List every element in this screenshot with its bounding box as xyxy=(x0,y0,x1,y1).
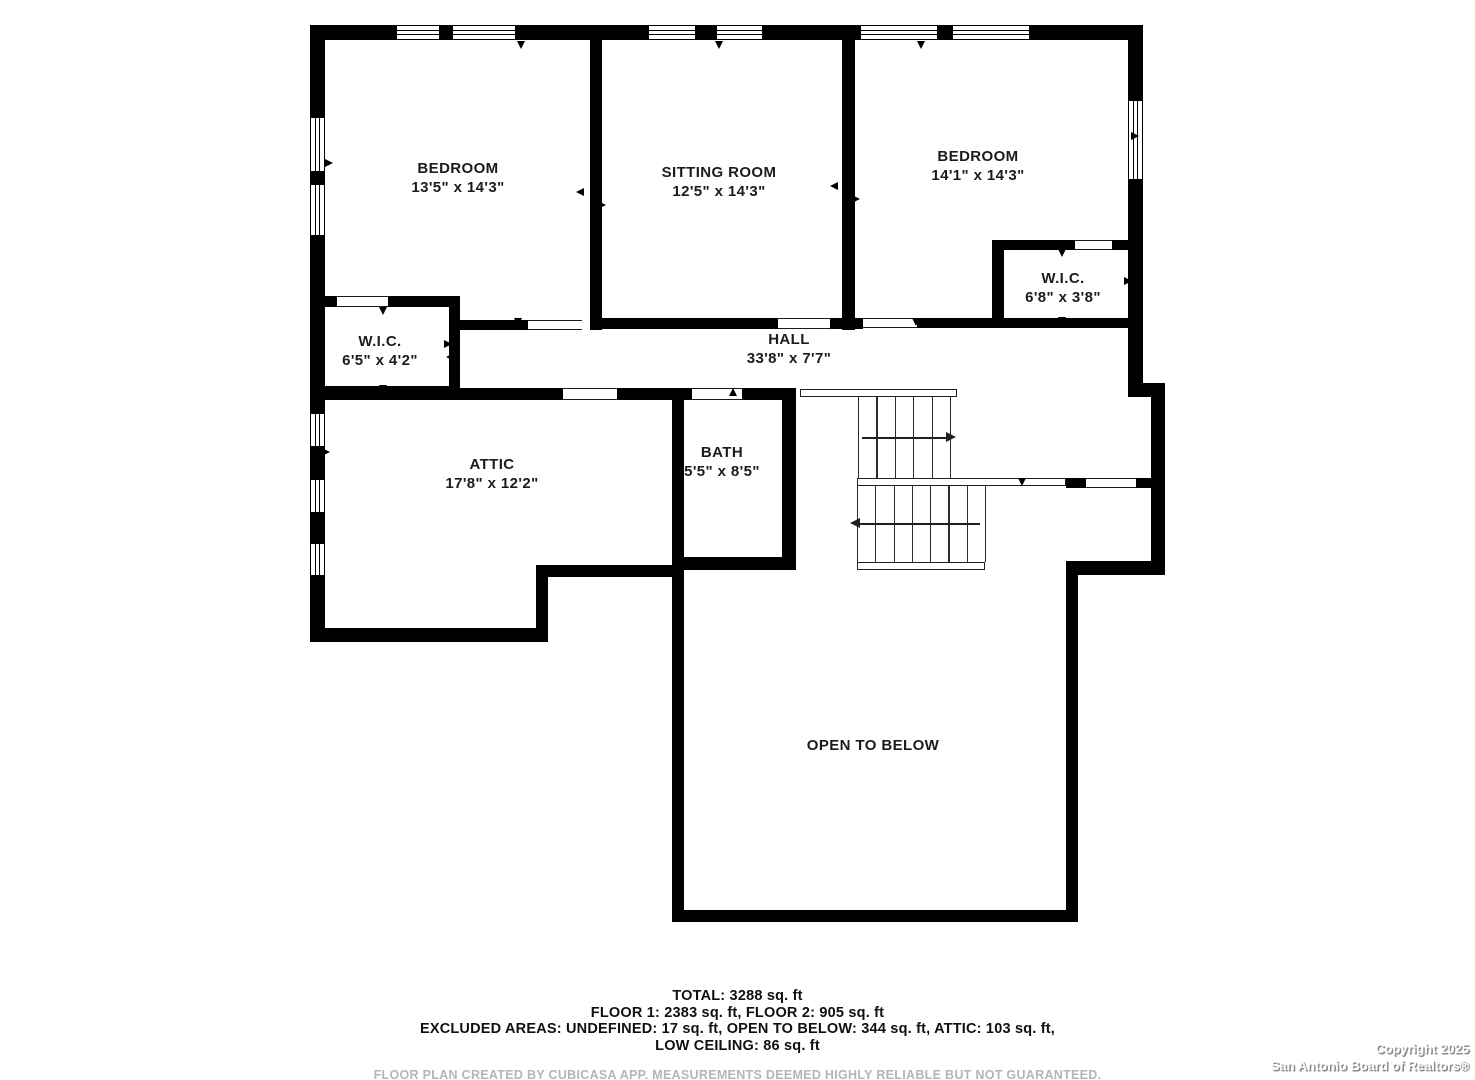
room-label-bedroom-1: BEDROOM xyxy=(417,160,498,177)
wall-segment xyxy=(310,628,548,642)
door-threshold xyxy=(1075,249,1112,250)
room-label-hall: HALL xyxy=(768,331,810,348)
door-marker-icon xyxy=(729,558,737,566)
stair-arrow xyxy=(862,437,946,439)
door-threshold xyxy=(563,388,617,389)
wall-segment xyxy=(1066,561,1078,922)
floor-plan-page: BEDROOM13'5" x 14'3"SITTING ROOM12'5" x … xyxy=(0,0,1475,1080)
door-marker-icon xyxy=(995,277,1003,285)
wall-segment xyxy=(1066,561,1165,575)
wall-segment xyxy=(536,565,684,577)
door-marker-icon xyxy=(912,318,920,326)
door-marker-icon xyxy=(325,159,333,167)
door-marker-icon xyxy=(576,188,584,196)
footer-disclaimer: FLOOR PLAN CREATED BY CUBICASA APP. MEAS… xyxy=(0,1068,1475,1080)
room-dims-bedroom-2: 14'1" x 14'3" xyxy=(931,167,1024,184)
room-label-attic: ATTIC xyxy=(469,456,514,473)
footer-total: TOTAL: 3288 sq. ft xyxy=(0,988,1475,1004)
door-marker-icon xyxy=(444,340,452,348)
window xyxy=(860,25,938,40)
window xyxy=(452,25,516,40)
room-label-bath: BATH xyxy=(701,444,743,461)
stair-tread xyxy=(985,486,986,562)
door-threshold xyxy=(528,320,582,321)
door-marker-icon xyxy=(514,318,522,326)
window xyxy=(310,184,325,236)
door-threshold xyxy=(337,296,388,297)
door-marker-icon xyxy=(1058,249,1066,257)
wall-segment xyxy=(782,388,796,570)
door-marker-icon xyxy=(471,630,479,638)
room-dims-bedroom-1: 13'5" x 14'3" xyxy=(411,179,504,196)
stair-landing-bar xyxy=(857,562,985,570)
door-marker-icon xyxy=(310,342,318,350)
door-marker-icon xyxy=(917,41,925,49)
wall-segment xyxy=(595,318,778,329)
stair-arrow xyxy=(860,523,980,525)
door-marker-icon xyxy=(715,41,723,49)
door-marker-icon xyxy=(379,385,387,393)
door-threshold xyxy=(778,328,830,329)
door-marker-icon xyxy=(852,195,860,203)
stair-tread xyxy=(858,397,859,478)
door-marker-icon xyxy=(517,41,525,49)
door-threshold xyxy=(692,399,742,400)
door-marker-icon xyxy=(1131,351,1139,359)
room-label-wic-left: W.I.C. xyxy=(358,333,401,350)
stair-landing-bar xyxy=(800,389,957,397)
wall-segment xyxy=(672,910,1078,922)
room-dims-wic-left: 6'5" x 4'2" xyxy=(342,352,418,369)
footer-excluded-areas: EXCLUDED AREAS: UNDEFINED: 17 sq. ft, OP… xyxy=(0,1021,1475,1037)
door-marker-icon xyxy=(729,388,737,396)
door-threshold xyxy=(1075,240,1112,241)
door-threshold xyxy=(1086,478,1136,479)
room-dims-wic-right: 6'8" x 3'8" xyxy=(1025,289,1101,306)
room-dims-hall: 33'8" x 7'7" xyxy=(747,350,832,367)
wall-segment xyxy=(672,565,684,922)
room-label-sitting-room: SITTING ROOM xyxy=(662,164,777,181)
wall-segment xyxy=(1066,478,1086,488)
copyright-notice: Copyright 2025 San Antonio Board of Real… xyxy=(1271,1040,1469,1074)
window xyxy=(648,25,696,40)
wall-segment xyxy=(1136,478,1151,488)
window xyxy=(310,117,325,172)
wall-segment xyxy=(1128,25,1143,390)
wall-segment xyxy=(672,388,684,568)
wall-segment xyxy=(917,318,1132,328)
stair-landing-bar xyxy=(857,478,1066,486)
door-marker-icon xyxy=(1124,277,1132,285)
room-dims-sitting-room: 12'5" x 14'3" xyxy=(672,183,765,200)
floor-plan-canvas: BEDROOM13'5" x 14'3"SITTING ROOM12'5" x … xyxy=(0,0,1475,1080)
door-marker-icon xyxy=(598,201,606,209)
door-threshold xyxy=(528,329,582,330)
door-threshold xyxy=(563,399,617,400)
room-dims-attic: 17'8" x 12'2" xyxy=(445,475,538,492)
door-marker-icon xyxy=(1058,317,1066,325)
window xyxy=(1128,100,1143,180)
door-threshold xyxy=(778,318,830,319)
wall-segment xyxy=(842,40,855,330)
stair-arrowhead-left-icon xyxy=(850,518,860,528)
door-marker-icon xyxy=(466,388,474,396)
footer-floors: FLOOR 1: 2383 sq. ft, FLOOR 2: 905 sq. f… xyxy=(0,1005,1475,1021)
door-marker-icon xyxy=(322,448,330,456)
door-marker-icon xyxy=(446,353,454,361)
wall-segment xyxy=(388,296,453,307)
wall-segment xyxy=(590,40,602,330)
window xyxy=(396,25,440,40)
wall-segment xyxy=(1112,240,1132,250)
room-label-bedroom-2: BEDROOM xyxy=(937,148,1018,165)
window xyxy=(310,479,325,513)
door-marker-icon xyxy=(379,307,387,315)
copyright-line-1: Copyright 2025 xyxy=(1271,1040,1469,1057)
room-dims-bath: 5'5" x 8'5" xyxy=(684,463,760,480)
stair-arrowhead-right-icon xyxy=(946,432,956,442)
room-label-open-to-below: OPEN TO BELOW xyxy=(807,737,939,754)
door-marker-icon xyxy=(1018,478,1026,486)
footer-low-ceiling: LOW CEILING: 86 sq. ft xyxy=(0,1038,1475,1054)
window xyxy=(310,413,325,447)
door-threshold xyxy=(863,318,917,319)
door-marker-icon xyxy=(830,182,838,190)
wall-segment xyxy=(325,388,563,400)
door-marker-icon xyxy=(714,318,722,326)
window xyxy=(952,25,1030,40)
wall-segment xyxy=(830,318,863,329)
window xyxy=(716,25,763,40)
door-marker-icon xyxy=(1131,132,1139,140)
room-label-wic-right: W.I.C. xyxy=(1041,270,1084,287)
door-threshold xyxy=(863,327,917,328)
wall-segment xyxy=(1151,383,1165,575)
door-threshold xyxy=(1086,487,1136,488)
copyright-line-2: San Antonio Board of Realtors® xyxy=(1271,1057,1469,1074)
wall-segment xyxy=(323,296,337,307)
window xyxy=(310,543,325,576)
